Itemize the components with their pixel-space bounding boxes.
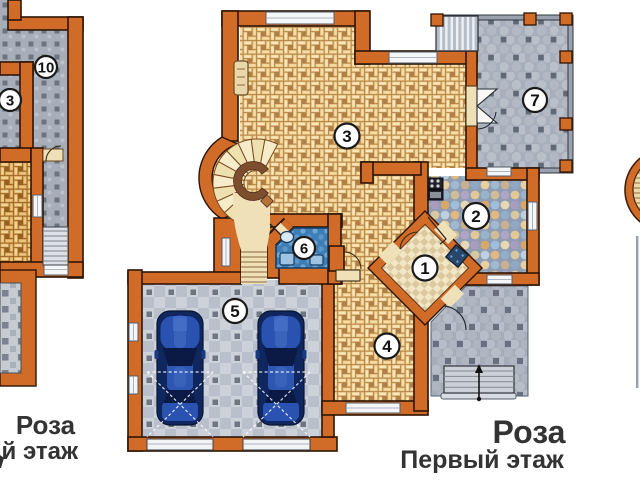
svg-text:7: 7 bbox=[530, 91, 539, 110]
svg-text:й этаж: й этаж bbox=[2, 438, 79, 465]
svg-text:10: 10 bbox=[38, 59, 55, 76]
svg-text:3: 3 bbox=[342, 127, 351, 146]
svg-text:Первый этаж: Первый этаж bbox=[400, 446, 564, 474]
svg-text:Роза: Роза bbox=[493, 414, 566, 450]
svg-text:1: 1 bbox=[420, 259, 429, 278]
svg-text:2: 2 bbox=[471, 207, 480, 226]
svg-text:Роза: Роза bbox=[16, 410, 76, 440]
svg-text:6: 6 bbox=[300, 240, 308, 257]
svg-text:5: 5 bbox=[230, 302, 239, 321]
svg-text:4: 4 bbox=[382, 337, 392, 356]
svg-text:3: 3 bbox=[6, 92, 14, 109]
